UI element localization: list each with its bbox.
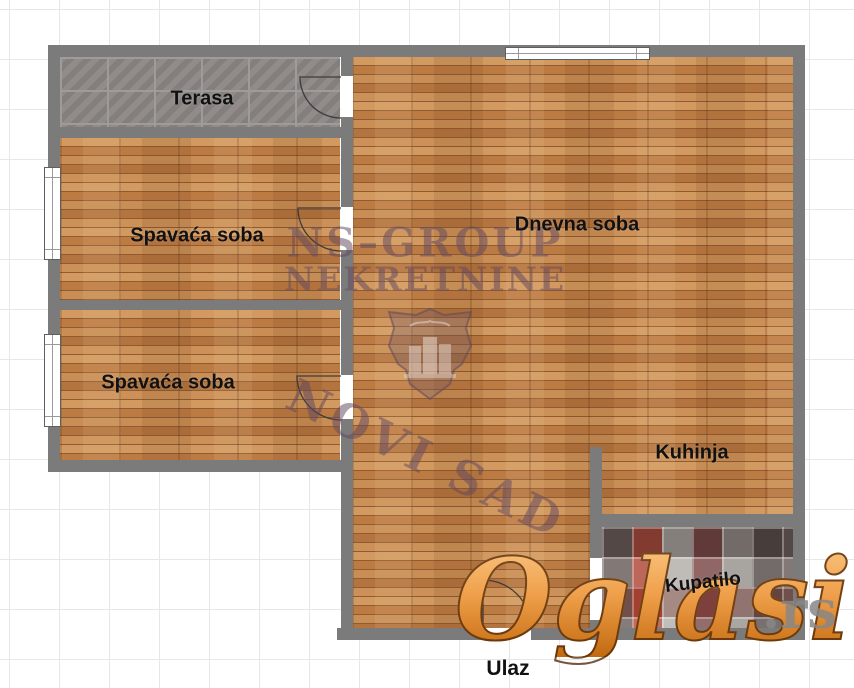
watermark-portal-tld: .rs bbox=[762, 580, 837, 641]
floorplan-canvas: NS–GROUP NEKRETNINE NOVI SAD Oglasi .rs … bbox=[0, 0, 854, 688]
label-living-room: Dnevna soba bbox=[515, 214, 639, 237]
watermark-shield-emblem bbox=[386, 306, 474, 402]
label-bedroom-1: Spavaća soba bbox=[130, 225, 263, 248]
watermark-agency-word: NEKRETNINE bbox=[284, 260, 566, 299]
label-bedroom-2: Spavaća soba bbox=[101, 372, 234, 395]
terrace-door-arc bbox=[300, 77, 341, 118]
label-terrace: Terasa bbox=[170, 88, 233, 111]
label-kitchen: Kuhinja bbox=[655, 442, 728, 465]
